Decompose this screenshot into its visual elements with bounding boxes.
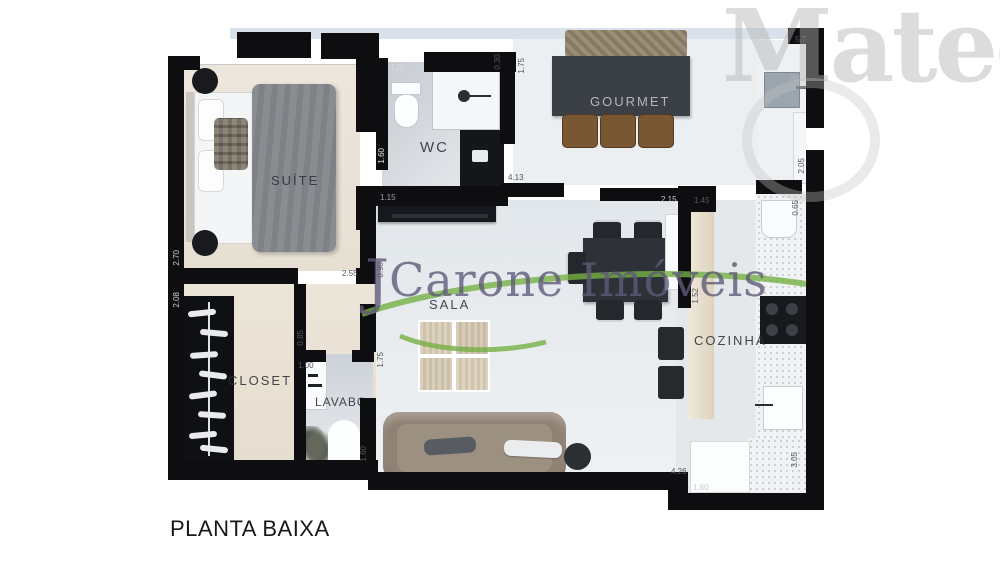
clothes-hanger (200, 329, 228, 337)
gourmet-bench (565, 30, 687, 57)
dimension-label: 1.15 (380, 194, 396, 202)
wall-segment (168, 56, 200, 70)
room-label-closet: CLOSET (228, 374, 292, 387)
lavabo-faucet (308, 374, 318, 377)
room-label-cozinha: COZINHA (694, 334, 767, 347)
lavabo-toilet (328, 420, 360, 464)
realtor-watermark: JCarone Imóveis (365, 252, 768, 312)
clothes-hanger (199, 370, 228, 379)
gourmet-chair (562, 114, 598, 148)
room-label-suite: SUÍTE (271, 174, 319, 187)
wall-segment (294, 284, 306, 462)
gourmet-chair (638, 114, 674, 148)
side-table-round (564, 443, 591, 470)
nightstand-round (192, 68, 218, 94)
sink-handle (755, 404, 773, 406)
builder-watermark: Matec (722, 0, 1000, 96)
kitchen-sink-bottom (763, 386, 803, 430)
room-label-gourmet: GOURMET (590, 95, 670, 108)
wall-segment (500, 52, 515, 144)
burner-icon (786, 324, 798, 336)
coffee-table-top (420, 322, 452, 354)
dimension-label: 3.05 (791, 452, 799, 468)
coffee-table (418, 320, 490, 392)
dimension-label: 1.75 (518, 58, 526, 74)
dimension-label: 1.00 (298, 362, 314, 370)
wall-segment (676, 493, 824, 510)
floor-plan-canvas: SUÍTE WC GOURMET SALA (0, 0, 1000, 563)
kitchen-counter-bottom (748, 438, 808, 494)
dimension-label: 2.15 (661, 196, 677, 204)
dimension-label: 1.60 (378, 148, 386, 164)
wall-segment (368, 472, 680, 490)
coffee-table-top (456, 322, 488, 354)
clothes-hanger (189, 431, 217, 439)
dimension-label: 2.55 (342, 270, 358, 278)
window-block (237, 32, 311, 58)
dimension-label: 0.30 (494, 54, 502, 70)
sofa-cushion-light (504, 439, 563, 458)
dimension-label: 1.80 (390, 64, 406, 72)
nightstand-round (192, 230, 218, 256)
wall-segment (168, 460, 378, 480)
wall-segment (180, 268, 298, 284)
clothes-hanger (198, 411, 226, 419)
toilet-bowl (394, 94, 419, 128)
bar-stool (658, 366, 684, 399)
coffee-table-top (456, 358, 488, 390)
wardrobe (184, 296, 234, 462)
wall-segment (500, 183, 564, 197)
dimension-label: 1.75 (377, 352, 385, 368)
gourmet-chair (600, 114, 636, 148)
dimension-label: 4.13 (508, 174, 524, 182)
coffee-table-top (420, 358, 452, 390)
wall-segment (356, 50, 376, 132)
dimension-label: 2.08 (173, 292, 181, 308)
bed-blanket (252, 84, 336, 252)
clothes-hanger (190, 351, 218, 359)
bar-stool (658, 327, 684, 360)
realtor-watermark-initial: J (365, 247, 389, 317)
room-label-wc: WC (420, 140, 449, 155)
dimension-label: 1.45 (694, 197, 710, 205)
plan-title: PLANTA BAIXA (170, 516, 330, 542)
shower-arm (469, 95, 491, 97)
clothes-hanger (200, 445, 228, 454)
tv-panel (392, 214, 488, 218)
burner-icon (766, 324, 778, 336)
dimension-label: 4.26 (671, 468, 687, 476)
bed-headboard (186, 92, 194, 242)
wc-sink (472, 150, 488, 162)
lavabo-faucet (308, 384, 322, 387)
clothes-hanger (189, 390, 218, 399)
dimension-label: 0.65 (792, 200, 800, 216)
clothes-hanger (188, 309, 216, 318)
builder-watermark-ornament (742, 78, 880, 202)
dimension-label: 1.60 (693, 484, 709, 492)
dimension-label: 1.60 (360, 446, 368, 462)
burner-icon (786, 303, 798, 315)
dimension-label: 0.85 (297, 330, 305, 346)
dimension-label: 2.70 (173, 250, 181, 266)
realtor-watermark-name: Carone Imóveis (389, 253, 768, 307)
bed-plaid-pillow (214, 118, 248, 170)
